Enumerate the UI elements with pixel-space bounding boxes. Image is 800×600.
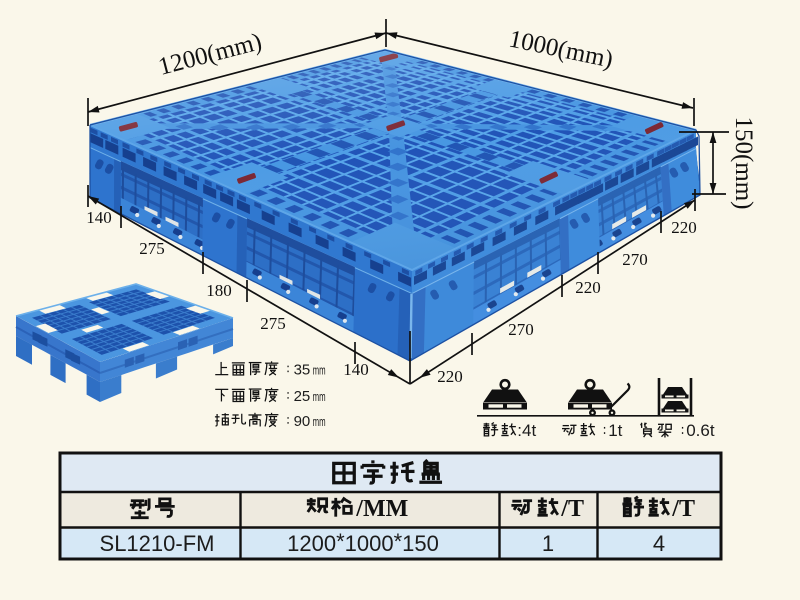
svg-text:270: 270 xyxy=(622,250,648,269)
svg-text:1: 1 xyxy=(542,531,554,556)
svg-text:mm: mm xyxy=(313,414,326,429)
svg-text:220: 220 xyxy=(671,218,697,237)
svg-text:/T: /T xyxy=(560,496,584,522)
svg-text:90: 90 xyxy=(294,413,311,430)
svg-text:220: 220 xyxy=(437,367,463,386)
svg-text:140: 140 xyxy=(343,360,369,379)
svg-text:180: 180 xyxy=(206,281,232,300)
svg-text:25: 25 xyxy=(294,388,311,405)
svg-text:4: 4 xyxy=(653,531,665,556)
svg-text:mm: mm xyxy=(313,363,326,378)
svg-text:mm: mm xyxy=(313,389,326,404)
svg-text:0.6t: 0.6t xyxy=(686,421,715,440)
svg-text:275: 275 xyxy=(260,314,286,333)
svg-text:/MM: /MM xyxy=(355,496,408,522)
svg-text::4t: :4t xyxy=(517,421,536,440)
svg-text:275: 275 xyxy=(139,239,165,258)
svg-text:270: 270 xyxy=(508,320,534,339)
svg-text:/T: /T xyxy=(671,496,695,522)
svg-text:35: 35 xyxy=(294,362,311,379)
svg-text:1t: 1t xyxy=(608,421,622,440)
svg-text:220: 220 xyxy=(575,278,601,297)
svg-text:140: 140 xyxy=(86,208,112,227)
svg-text:150(mm): 150(mm) xyxy=(730,116,757,209)
svg-text:SL1210-FM: SL1210-FM xyxy=(100,531,215,556)
svg-text:1200*1000*150: 1200*1000*150 xyxy=(287,529,439,556)
